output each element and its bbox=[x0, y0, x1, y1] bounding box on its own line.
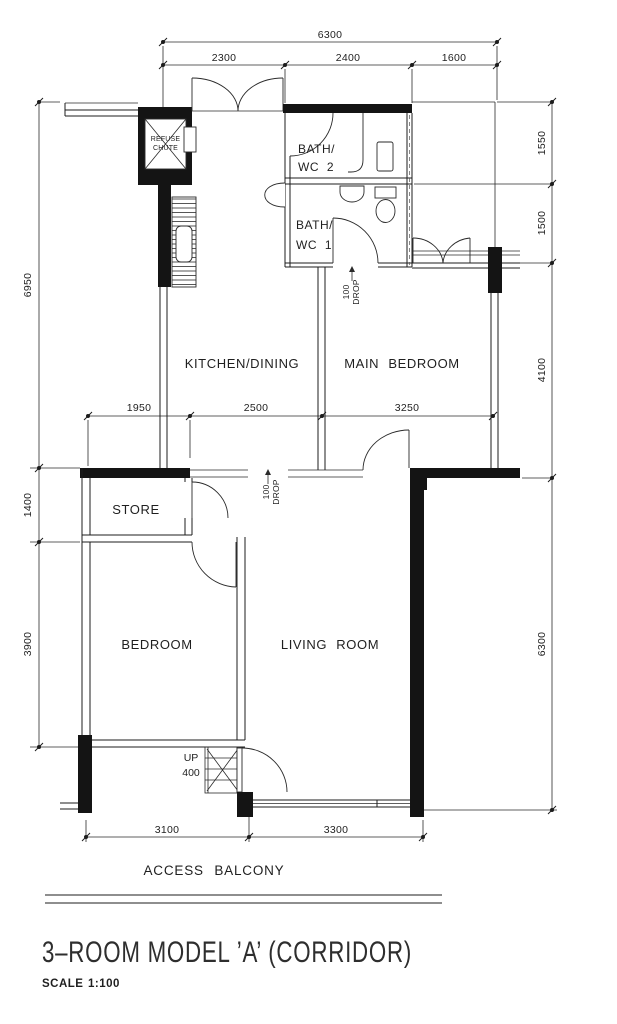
toilet bbox=[375, 187, 396, 223]
basin bbox=[340, 186, 364, 202]
room-label-living-room: LIVING ROOM bbox=[281, 637, 379, 652]
scale-label: SCALE bbox=[42, 978, 83, 990]
room-label-bath2-2: WC 2 bbox=[298, 160, 334, 174]
svg-text:100: 100 bbox=[261, 485, 271, 500]
dim-right-1500: 1500 bbox=[536, 211, 548, 236]
dim-mid-2500: 2500 bbox=[244, 402, 269, 414]
svg-text:100: 100 bbox=[341, 285, 351, 300]
shower-tray bbox=[377, 142, 393, 171]
room-label-bath1-2: WC 1 bbox=[296, 238, 332, 252]
dim-left-6950: 6950 bbox=[22, 273, 34, 298]
room-label-bath1-1: BATH/ bbox=[296, 218, 333, 232]
room-label-kitchen-dining: KITCHEN/DINING bbox=[185, 356, 300, 371]
drawing-title: 3–ROOM MODEL ’A’ (CORRIDOR) bbox=[42, 936, 412, 969]
dim-top-2300: 2300 bbox=[212, 52, 237, 64]
dim-left-1400: 1400 bbox=[22, 493, 34, 518]
floorplan-svg: 6300 2300 2400 1600 6950 1400 3900 1550 … bbox=[0, 0, 617, 1024]
svg-text:DROP: DROP bbox=[271, 479, 281, 504]
dim-right-4100: 4100 bbox=[536, 358, 548, 383]
room-label-bath2-1: BATH/ bbox=[298, 142, 335, 156]
up-value: 400 bbox=[182, 767, 200, 779]
dim-top-total: 6300 bbox=[318, 29, 343, 41]
room-label-refuse-1: REFUSE bbox=[151, 136, 181, 143]
dim-mid-3250: 3250 bbox=[395, 402, 420, 414]
up-label: UP bbox=[184, 752, 199, 764]
room-label-refuse-2: CHUTE bbox=[153, 145, 178, 152]
dim-right-1550: 1550 bbox=[536, 131, 548, 156]
dim-bottom-3300: 3300 bbox=[324, 824, 349, 836]
dim-top-1600: 1600 bbox=[442, 52, 467, 64]
dim-right-6300: 6300 bbox=[536, 632, 548, 657]
svg-text:DROP: DROP bbox=[351, 279, 361, 304]
room-label-main-bedroom: MAIN BEDROOM bbox=[344, 356, 459, 371]
room-label-bedroom: BEDROOM bbox=[121, 637, 192, 652]
dim-bottom-3100: 3100 bbox=[155, 824, 180, 836]
dim-mid-1950: 1950 bbox=[127, 402, 152, 414]
access-balcony-label: ACCESS BALCONY bbox=[144, 863, 285, 878]
room-label-store: STORE bbox=[112, 502, 160, 517]
dim-top-2400: 2400 bbox=[336, 52, 361, 64]
scale-value: 1:100 bbox=[88, 978, 120, 990]
dim-left-3900: 3900 bbox=[22, 632, 34, 657]
floorplan-sheet: 6300 2300 2400 1600 6950 1400 3900 1550 … bbox=[0, 0, 617, 1024]
kitchen-sink bbox=[176, 226, 192, 262]
